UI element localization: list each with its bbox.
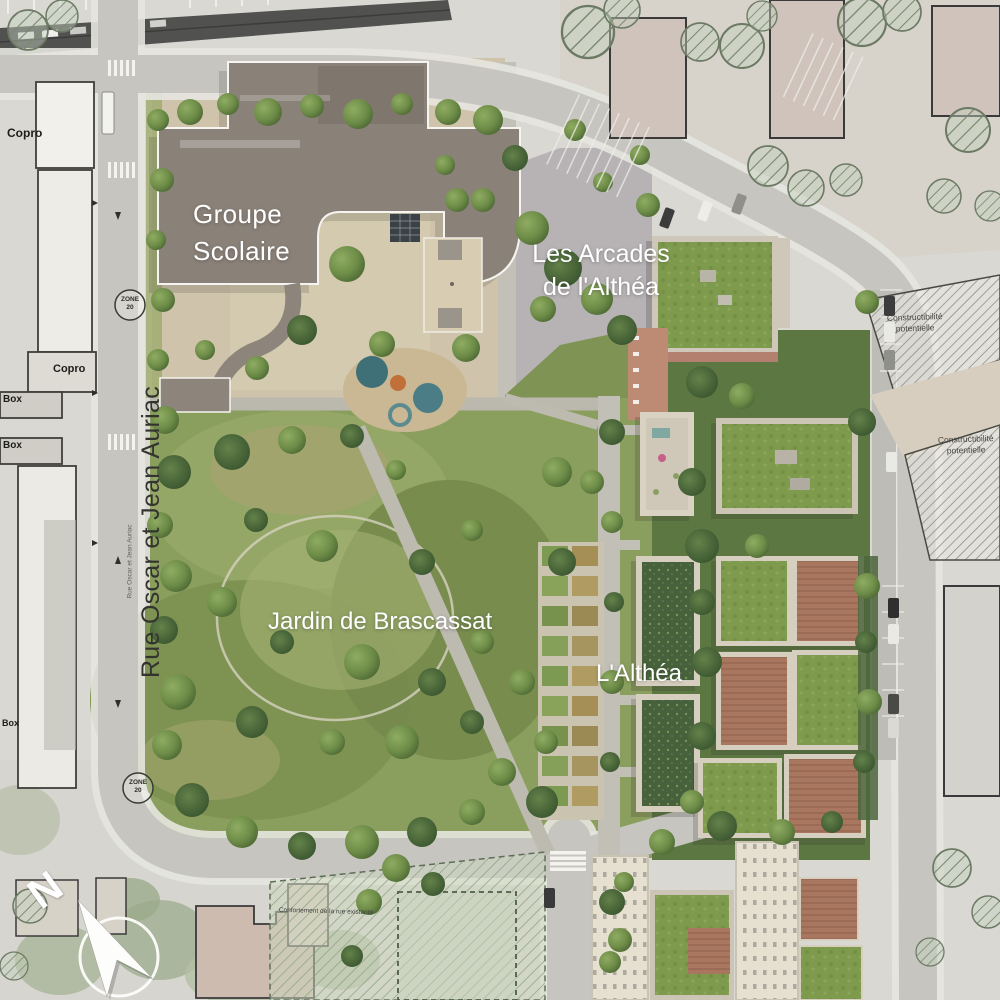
community-gardens — [538, 542, 604, 820]
sports-court — [424, 238, 482, 332]
althea-west-wing-1 — [631, 556, 700, 691]
solar-panels — [390, 214, 420, 242]
zone-20-circle-bottom — [123, 773, 153, 803]
playground — [343, 348, 467, 432]
green-roof-mid-building — [711, 418, 858, 519]
althea-east-block-1 — [711, 556, 865, 651]
future-building-outline — [398, 892, 516, 1000]
site-plan-graphic — [0, 0, 1000, 1000]
masterplan-map: Groupe Scolaire Les Arcades de l'Althéa … — [0, 0, 1000, 1000]
zone-20-circle-top — [115, 290, 145, 320]
school-annex — [160, 378, 230, 412]
althea-east-block-2 — [711, 650, 867, 755]
terrace-building — [635, 412, 694, 521]
